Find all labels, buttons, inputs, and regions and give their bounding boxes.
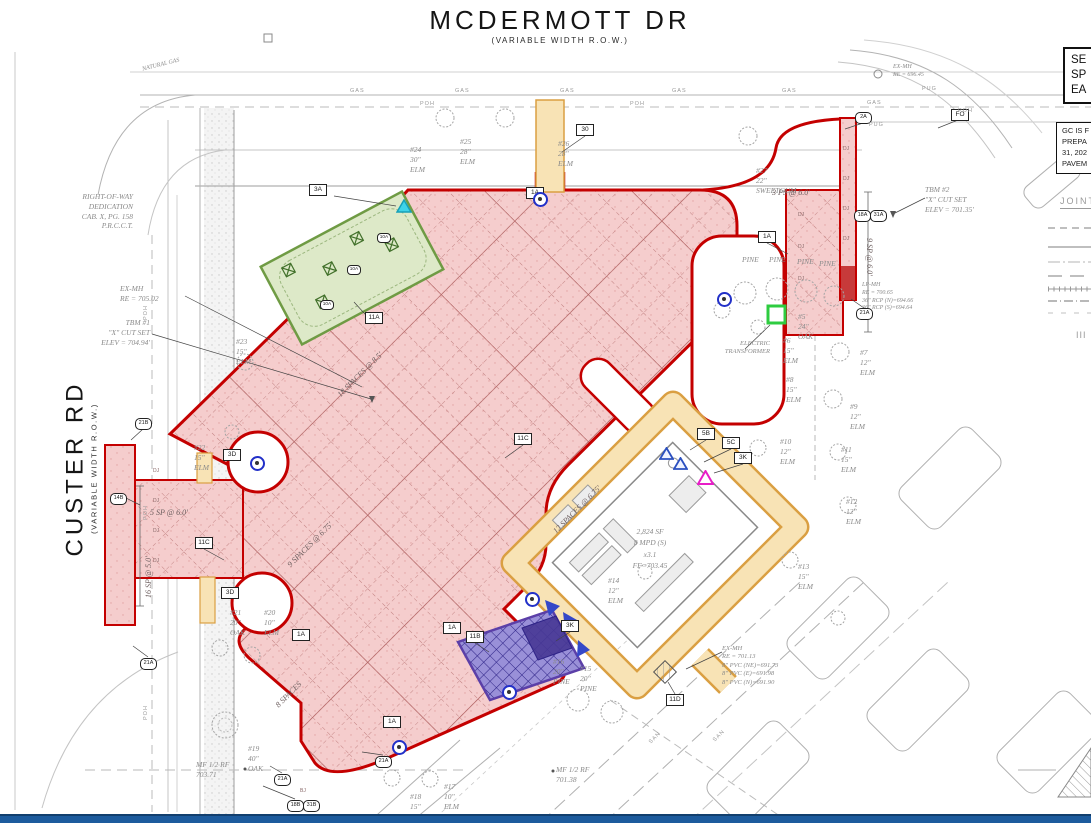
blue-marker-icon [392,740,407,755]
joint-tag: DJ [843,236,849,242]
benchmark-south-note: MF 1/2 RF 701.38 [556,765,589,785]
keynote-box: 3A [309,184,327,196]
general-note-box-1: SE SP EA [1063,47,1091,104]
keynote-box: 3K [561,620,579,632]
blue-triangle-icon [673,457,688,475]
tree-label: #10 12" ELM [780,437,795,466]
keynote-box: 3K [734,452,752,464]
keynote-box: 1A [758,231,776,243]
tree-label: #24 30" ELM [410,145,425,174]
poh-line-label: POH [143,505,149,520]
joint-tag: DJ [153,558,159,564]
poh-line-label: POH [630,101,645,107]
hex-marker: 18A [854,210,871,222]
joint-tag: DJ [843,176,849,182]
mcdermott-row-label: (VARIABLE WIDTH R.O.W.) [400,36,720,45]
tbm1-note: TBM #1 "X" CUT SET ELEV = 704.94' [70,318,150,347]
bottom-window-edge [0,814,1091,823]
joint-tag: DJ [153,528,159,534]
keynote-box: 1A [443,622,461,634]
tree-label: #13 15" ELM [798,562,813,591]
ex-mh-south-note: EX-MH RE = 701.13 8" PVC (NE)=691.73 8" … [722,645,778,687]
legend-bars-label: III [1076,330,1087,340]
hex-marker: 21A [140,658,157,670]
keynote-box: 3D [223,449,241,461]
hex-marker: 18B [287,800,304,812]
hex-marker: 31B [303,800,320,812]
ex-mh-custer-note: EX-MH RE = 705.02 [120,284,159,304]
tree-label: #19 40" OAK [248,744,263,773]
tree-label: #22 15" ELM [194,443,209,472]
tree-label: #14 12" ELM [608,576,623,605]
poh-line-label: POH [420,101,435,107]
hex-marker: 21A [274,774,291,786]
tree-label: #15 20" PINE [580,664,597,693]
tree-label: #21 20" OAK [230,608,245,637]
keynote-box: 11C [195,537,213,549]
electric-transformer-label: ELECTRIC TRANSFORMER [712,340,770,357]
pine-row-label: PINE [769,255,786,265]
custer-row-label: (VARIABLE WIDTH R.O.W.) [90,339,99,599]
site-plan-drawing [0,0,1091,823]
joint-tag: BJ [300,788,306,794]
site-plan-sheet: MCDERMOTT DR (VARIABLE WIDTH R.O.W.) CUS… [0,0,1091,823]
hex-marker: 14B [110,493,127,505]
blue-marker-icon [250,456,265,471]
tree-label: #23 15" ELM [236,337,251,366]
mcdermott-dr-label: MCDERMOTT DR [400,5,720,36]
keynote-box: 11A [365,312,383,324]
poh-line-label: POH [143,305,149,320]
blue-triangle-icon [659,447,674,465]
joint-tag: DJ [798,244,804,250]
custer-rd-label-group: CUSTER RD (VARIABLE WIDTH R.O.W.) [62,339,99,599]
electric-transformer-pad [768,306,785,323]
joint-tag: DJ [798,212,804,218]
manhole-icon [874,70,882,78]
general-note-box-2: GC IS F PREPA 31, 202 PAVEM [1056,122,1091,174]
tree-label: #7 12" ELM [860,348,875,377]
tree-label: #20 10" ELM [264,608,279,637]
tree-label: #8 15" ELM [786,375,801,404]
hex-marker: 10A [377,233,391,243]
pug-line-label: PUG [869,122,884,128]
magenta-triangle-icon [697,470,714,490]
ex-mh-ne-note: EX-MH RE = 696.45 [893,64,924,80]
poh-line-label: POH [143,705,149,720]
joint-legend-linetypes [1048,228,1091,313]
parking-count-label: 9 SP @ 6.0' [865,238,874,276]
keynote-box: 30 [576,124,594,136]
joint-tag: DJ [153,468,159,474]
tree-label: #16 20" PINE [553,657,570,686]
blue-marker-icon [525,592,540,607]
building-data-label: 2,824 SF 8 MPD (S) x3.1 FF=703.45 [598,526,702,571]
benchmark-west-note: MF 1/2 RF 703.71 [196,760,229,780]
tree-label: #26 28" ELM [558,139,573,168]
blue-marker-icon [533,192,548,207]
keynote-box: 1A [383,716,401,728]
hex-marker: 21B [135,418,152,430]
gas-line-label: GAS [560,88,575,94]
gas-line-label: GAS [867,100,882,106]
joint-tag: DJ [153,498,159,504]
hex-marker: 31A [870,210,887,222]
hex-marker: 10A [347,265,361,275]
cyan-triangle-icon [396,199,412,218]
keynote-box: 5C [722,437,740,449]
parking-count-label: 5 SP @ 6.0' [150,508,188,517]
keynote-box: 3D [221,587,239,599]
tree-label: #6 15" ELM [783,336,798,365]
gas-line-label: GAS [455,88,470,94]
keynote-box: 1A [292,629,310,641]
tree-label: #17 10" ELM [444,782,459,811]
gas-meter-icon [264,34,272,42]
parking-count-label: 3 PS @ 6.0' [772,188,810,197]
poh-line-label: POH [958,108,973,114]
row-dedication-note: RIGHT-OF-WAY DEDICATION CAB. X, PG. 158 … [55,192,133,231]
blue-marker-icon [502,685,517,700]
joint-tag: DJ [843,146,849,152]
gas-line-label: GAS [672,88,687,94]
joint-legend-title: JOINT [1060,196,1091,209]
tree-label: #9 12" ELM [850,402,865,431]
pine-row-label: PINE [742,255,759,265]
joint-tag: DJ [843,206,849,212]
gas-line-label: GAS [350,88,365,94]
edge-hatch-detail [1018,748,1091,797]
joint-tag: DJ [798,276,804,282]
pine-row-label: PINE [797,257,814,267]
tree-label: #11 15" ELM [841,445,856,474]
tree-label: #25 28" ELM [460,137,475,166]
tree-label: #5 24" OAK [798,312,813,341]
gas-line-label: GAS [782,88,797,94]
keynote-box: 11B [466,631,484,643]
hex-marker: 21A [375,756,392,768]
keynote-box: 11C [514,433,532,445]
blue-marker-icon [717,292,732,307]
tree-label: #12 12" ELM [846,497,861,526]
custer-rd-label: CUSTER RD [62,339,90,599]
keynote-box: 11D [666,694,684,706]
hex-marker: 21A [856,308,873,320]
keynote-box: 5B [697,428,715,440]
pine-row-label: PINE [819,259,836,269]
pug-line-label: PUG [922,86,937,92]
hex-marker: 10A [320,300,334,310]
parking-count-label: 16 SP @ 5.0' [144,556,153,598]
tbm2-note: TBM #2 "X" CUT SET ELEV = 701.35' [925,185,974,214]
